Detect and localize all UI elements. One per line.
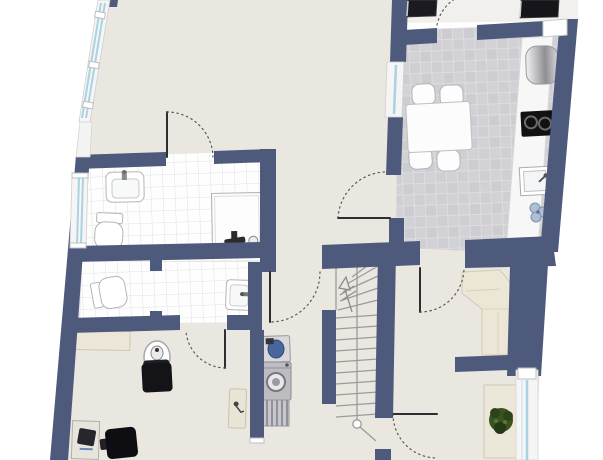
wall-divider-lower	[386, 117, 403, 175]
dining-table-icon	[406, 101, 472, 152]
shower-icon	[212, 193, 263, 251]
washing-machine-icon	[262, 362, 291, 400]
window-kitchen-divider	[385, 62, 404, 117]
doormat-icon	[520, 0, 559, 18]
door-frame-office	[250, 438, 264, 443]
wall-panel-icon	[228, 389, 246, 429]
desk-icon	[71, 421, 99, 460]
wall-kitchen-bottom	[465, 236, 556, 268]
wall-office-right	[250, 330, 264, 442]
wall-kitchen-top-left	[404, 28, 437, 45]
window-dining-right	[516, 368, 538, 460]
armchair-icon	[141, 359, 173, 393]
chair-icon	[411, 83, 435, 106]
bath-sink-icon	[106, 170, 145, 203]
wall-hall-bottom-stub	[375, 449, 391, 460]
toilet-icon	[94, 212, 124, 249]
wall-wc-bottom-left	[70, 315, 180, 333]
wall-stair-right	[375, 251, 396, 418]
wall-dining-column	[507, 264, 548, 376]
window-bathroom-left	[70, 173, 88, 248]
wall-dining-bottom	[455, 355, 510, 372]
wall-wc-stub-top	[150, 260, 162, 271]
fridge-icon	[525, 45, 558, 84]
window-top-panel	[543, 19, 567, 37]
stair-center-post	[353, 420, 361, 428]
wall-wc-bottom-right	[227, 315, 262, 330]
floor-plan-canvas	[0, 0, 603, 460]
floor-plan-svg	[0, 0, 603, 460]
chair-icon	[437, 150, 461, 172]
wall-stair-left	[322, 310, 336, 404]
doormat-icon	[407, 0, 437, 17]
radiator-icon	[263, 400, 289, 426]
sideboard-icon	[75, 331, 130, 351]
printer-icon	[77, 428, 97, 447]
utility-group	[262, 336, 291, 426]
cooktop-icon	[520, 110, 554, 137]
wall-bath-right	[260, 149, 276, 272]
wall-hall-top	[322, 241, 420, 269]
laundry-sink-icon	[263, 336, 291, 363]
